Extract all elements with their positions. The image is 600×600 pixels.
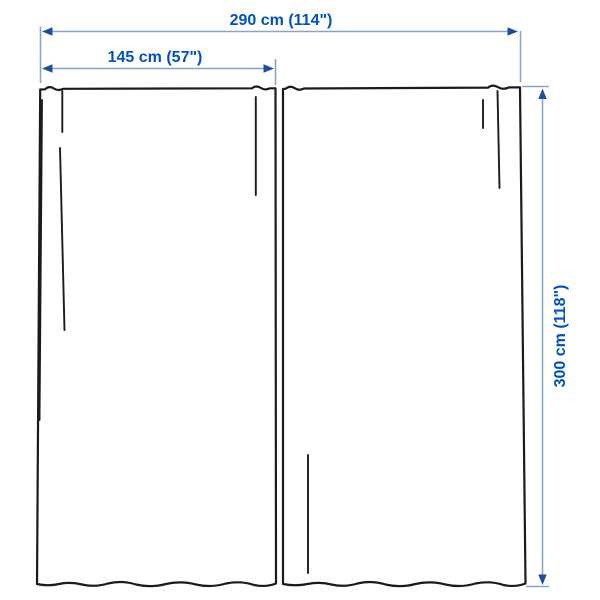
panel-width-dimension: 145 cm (57") (42, 49, 276, 85)
total-width-dimension: 290 cm (114") (41, 12, 521, 83)
product-diagram-canvas: 290 cm (114") 145 cm (57") 300 cm (118") (0, 0, 600, 600)
arrowhead-down-icon (538, 575, 546, 586)
panel-width-label: 145 cm (57") (108, 49, 203, 66)
arrowhead-left-icon (42, 27, 53, 35)
height-dimension: 300 cm (118") (522, 87, 569, 587)
height-label: 300 cm (118") (552, 285, 569, 388)
arrowhead-right-icon (508, 27, 519, 35)
left-curtain-outline (37, 86, 276, 586)
total-width-label: 290 cm (114") (230, 12, 333, 29)
fold-line (498, 91, 500, 188)
curtain-dimension-diagram: 290 cm (114") 145 cm (57") 300 cm (118") (0, 0, 600, 600)
arrowhead-right-icon (264, 64, 275, 72)
arrowhead-left-icon (42, 64, 53, 72)
arrowhead-up-icon (538, 89, 546, 100)
fold-line (60, 148, 65, 330)
left-curtain-panel (37, 86, 276, 586)
right-curtain-panel (283, 86, 526, 587)
right-curtain-outline (283, 86, 526, 587)
